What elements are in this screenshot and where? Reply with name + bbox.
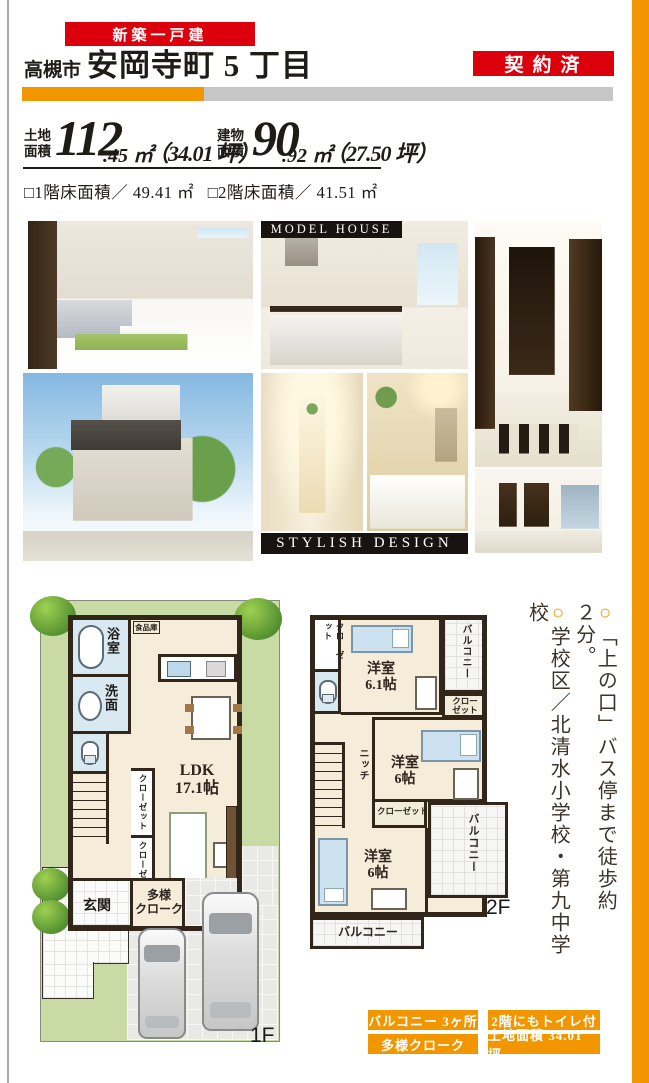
bathroom-label: 浴室	[103, 627, 122, 655]
ldk-name: LDK	[180, 762, 215, 779]
status-badge: 契約済	[473, 51, 614, 76]
town-label: 安岡寺町 5 丁目	[87, 40, 313, 85]
balcony-top-label: バルコニー	[458, 624, 473, 679]
entrance-room: 玄関	[73, 878, 133, 926]
divider-rule	[23, 167, 381, 169]
cloak-label: 多様 クローク	[133, 889, 185, 917]
room1-label: 洋室 6.1帖	[349, 662, 413, 694]
photo-entrance-hall	[475, 221, 602, 467]
room2-size: 6帖	[395, 772, 416, 787]
room1-2f: 洋室 6.1帖	[341, 620, 442, 715]
balcony-top-2f: バルコニー	[442, 620, 482, 693]
closet-mid-2f: クローゼット	[372, 802, 427, 828]
floorplan-1f: 浴室 洗面 食品庫	[28, 596, 280, 1048]
floor2-area: □2階床面積／ 41.51 ㎡	[208, 183, 378, 202]
model-house-banner-label: MODEL HOUSE	[271, 222, 393, 237]
photo-niche	[261, 373, 363, 531]
house-outline-1f: 浴室 洗面 食品庫	[68, 615, 242, 931]
room2-name: 洋室	[391, 756, 419, 771]
floor-areas-line: □1階床面積／ 49.41 ㎡ □2階床面積／ 41.51 ㎡	[24, 179, 378, 203]
toilet-room-2f	[315, 672, 341, 714]
land-area-label: 土地 面積	[24, 128, 51, 159]
building-label-line2: 面積	[217, 144, 244, 160]
room3-size: 6帖	[368, 866, 389, 881]
room3-label: 洋室 6帖	[349, 850, 407, 882]
floorplan-2f: クローゼット 洋室 6.1帖 バルコニー クロー	[308, 596, 513, 968]
closet-a-1f: クローゼット	[131, 768, 155, 838]
niche-label: ニッチ	[355, 748, 370, 781]
bed-icon	[318, 838, 348, 906]
note-school-district: ○学校区／北清水小学校・第九中学校	[525, 602, 568, 962]
dining-table	[191, 696, 231, 740]
flyer-page: 新築一戸建 高槻市 安岡寺町 5 丁目 契約済 土地 面積 112 .45 ㎡ …	[0, 0, 649, 1083]
pantry-label: 食品庫	[133, 621, 160, 634]
closet-right-label: クロー ゼット	[445, 697, 485, 716]
city-label: 高槻市	[24, 55, 81, 82]
room2-2f: 洋室 6帖	[372, 717, 482, 802]
chair-icons	[233, 704, 242, 712]
room1-size: 6.1帖	[365, 678, 397, 693]
ldk-label: LDK 17.1帖	[159, 762, 235, 799]
car-icon-large	[202, 892, 259, 1031]
status-badge-label: 契約済	[504, 50, 588, 77]
photo-exterior	[23, 373, 253, 561]
room3-name: 洋室	[364, 850, 392, 865]
balcony-right-label: バルコニー	[465, 813, 481, 873]
stove-icon	[206, 661, 226, 677]
approach-tiles-step	[42, 962, 94, 999]
balcony-bottom-label: バルコニー	[313, 926, 423, 940]
closet-tl-2f: クローゼット	[315, 620, 341, 672]
stairs-2f	[315, 742, 345, 828]
closet-right-2f: クロー ゼット	[442, 693, 482, 718]
room2-label: 洋室 6帖	[377, 756, 433, 788]
left-margin-rule	[7, 0, 9, 1083]
feature-badge-cloak: 多様クローク	[368, 1034, 478, 1054]
stylish-design-banner: STYLISH DESIGN	[261, 533, 468, 554]
feature-badge-balcony: バルコニー 3ヶ所	[368, 1010, 478, 1030]
stairs-1f	[73, 774, 109, 844]
feature-badge-land-area: 土地面積 34.01 坪	[488, 1034, 600, 1054]
model-house-banner: MODEL HOUSE	[261, 221, 402, 238]
floor-label-1f: 1F	[250, 1024, 275, 1048]
right-accent-stripe	[632, 0, 649, 1083]
tree-icon	[32, 900, 70, 934]
desk-icon	[371, 888, 407, 910]
cloak-line1: 多様	[147, 888, 171, 902]
note-marker-icon: ○	[594, 602, 616, 626]
accent-bar	[22, 87, 613, 101]
room1-name: 洋室	[367, 662, 395, 677]
closet-right-line2: ゼット	[452, 705, 478, 715]
cloak-room: 多様 クローク	[133, 878, 185, 926]
cloak-line2: クローク	[135, 902, 183, 916]
floor-label-2f: 2F	[486, 896, 511, 920]
photo-kitchen	[261, 221, 468, 369]
toilet-icon	[319, 680, 337, 704]
photo-bathroom	[367, 373, 468, 531]
washroom-room: 洗面	[73, 677, 131, 734]
land-label-line1: 土地	[24, 128, 51, 144]
desk-icon	[453, 768, 479, 800]
accent-bar-orange-segment	[22, 87, 204, 101]
toilet-room-1f	[73, 734, 109, 774]
sink-icon	[78, 691, 102, 721]
balcony-bottom-2f: バルコニー	[310, 917, 424, 949]
closet-mid-label: クローゼット	[375, 807, 430, 817]
toilet-icon	[81, 741, 99, 765]
land-label-line2: 面積	[24, 144, 51, 160]
land-area-decimal: .45 ㎡	[103, 139, 153, 168]
note-bus-stop: ○「上の口」バス停まで徒歩約２分。	[572, 602, 615, 922]
photo-bedroom	[475, 469, 602, 553]
entrance-label: 玄関	[83, 895, 111, 915]
property-title: 高槻市 安岡寺町 5 丁目	[24, 40, 313, 85]
building-label-line1: 建物	[217, 128, 244, 144]
room3-2f: 洋室 6帖	[315, 828, 428, 912]
floor1-area: □1階床面積／ 49.41 ㎡	[24, 183, 194, 202]
washroom-label: 洗面	[101, 684, 120, 712]
closet-a-label: クローゼット	[137, 774, 149, 831]
photo-living-room	[28, 221, 253, 369]
building-area-tsubo: （27.50 坪）	[325, 136, 437, 168]
bathroom-room: 浴室	[73, 620, 131, 677]
car-icon-small	[138, 928, 186, 1039]
bathtub-icon	[78, 625, 104, 669]
tree-icon	[32, 868, 70, 902]
desk-icon	[415, 676, 437, 710]
note-marker-icon: ○	[547, 602, 569, 626]
building-area-label: 建物 面積	[217, 128, 244, 159]
balcony-right-2f: バルコニー	[428, 802, 508, 898]
stylish-design-banner-label: STYLISH DESIGN	[276, 535, 452, 552]
ldk-size: 17.1帖	[175, 780, 219, 797]
bed-icon	[351, 625, 413, 653]
kitchen-counter	[158, 654, 237, 682]
note-school-text: 学校区／北清水小学校・第九中学校	[526, 602, 570, 956]
sink-icon	[167, 661, 191, 677]
note-bus-text: 「上の口」バス停まで徒歩約２分。	[573, 602, 617, 912]
chair-icons	[185, 704, 194, 712]
